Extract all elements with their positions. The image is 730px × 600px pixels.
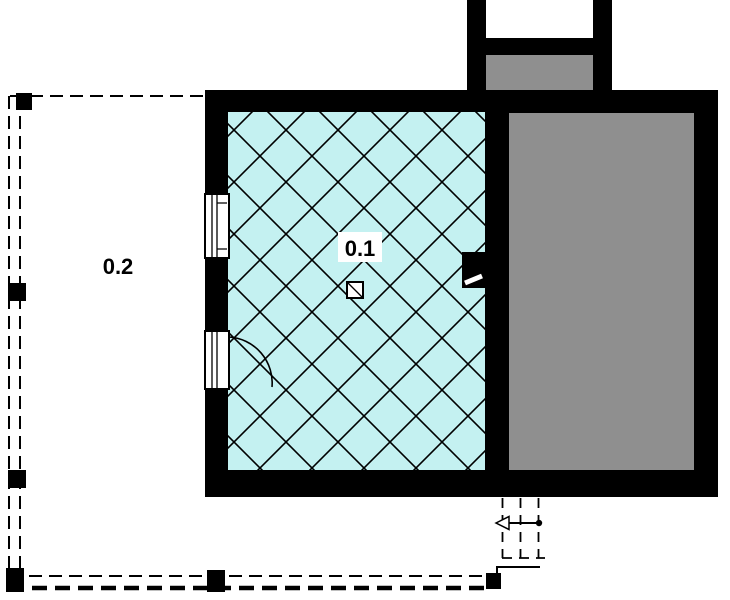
porch-floor (486, 55, 593, 90)
post-marker (8, 283, 26, 301)
porch-wall-top (467, 38, 612, 55)
room-label-main: 0.1 (345, 236, 376, 261)
post-marker (16, 93, 32, 110)
building (205, 90, 718, 497)
post-marker (6, 568, 24, 592)
stair-direction-dot (536, 520, 542, 526)
floor-plan-canvas: 0.1 0.2 (0, 0, 730, 600)
window-symbol (205, 194, 229, 258)
drain-symbol (347, 282, 363, 298)
room-label-terrace: 0.2 (103, 254, 134, 279)
post-marker (8, 470, 26, 488)
garage-floor (509, 113, 694, 470)
post-marker (207, 570, 225, 592)
floor-plan: 0.1 0.2 (0, 0, 730, 600)
post-marker (486, 573, 501, 589)
